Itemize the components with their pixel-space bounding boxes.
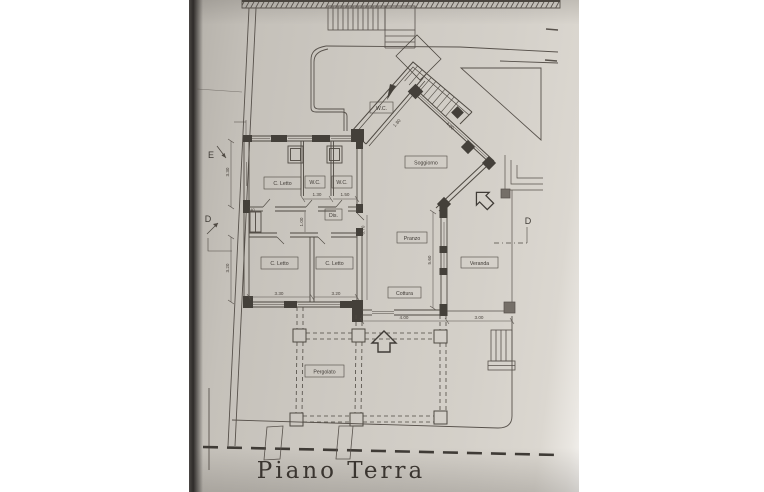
veranda-stair xyxy=(488,330,515,370)
plan-drawing: E D D 1.30 1.50 3.30 3.20 4.00 3.00 xyxy=(0,0,764,492)
driveway-inner xyxy=(314,49,344,131)
pergola-columns xyxy=(290,329,447,426)
room-label-wc-1: W.C. xyxy=(309,180,320,186)
dim-corridor-small: .40 xyxy=(249,207,255,212)
section-marker-d-right: D xyxy=(525,216,532,226)
room-label-c-letto-top: C. Letto xyxy=(273,181,291,187)
room-label-wc-2: W.C. xyxy=(336,180,347,186)
room-label-soggiorno: Soggiorno xyxy=(414,161,438,167)
terrain-line xyxy=(197,89,242,92)
entrance-arrow-soggiorno xyxy=(470,186,497,213)
driveway-outer xyxy=(311,46,347,131)
entrance-arrow-pergola xyxy=(372,331,396,352)
dimension-texts: 1.30 1.50 3.30 3.20 4.00 3.00 .40 5.60 6… xyxy=(225,118,484,320)
site-boundary xyxy=(197,0,560,470)
dim-center-height: 6.70 xyxy=(361,225,366,234)
room-label-pergolato: Pergolato xyxy=(313,370,335,376)
dim-bed-mid: 3.20 xyxy=(332,291,341,296)
dim-kitchen: 4.00 xyxy=(400,315,409,320)
room-label-veranda: Veranda xyxy=(470,261,489,267)
road-line-2 xyxy=(500,61,558,63)
dim-side-lower: 3.20 xyxy=(225,263,230,272)
dim-veranda: 3.00 xyxy=(475,315,484,320)
kitchen-walls xyxy=(362,207,448,316)
room-label-c-letto-left: C. Letto xyxy=(270,261,288,267)
dimension-lines xyxy=(228,139,514,324)
door-swing xyxy=(387,84,396,100)
room-label-c-letto-mid: C. Letto xyxy=(325,261,343,267)
top-staircase xyxy=(328,6,415,48)
dim-wc2: 1.50 xyxy=(341,192,350,197)
section-marker-d-left: D xyxy=(205,214,212,224)
dim-wc1: 1.30 xyxy=(313,192,322,197)
wall-piers xyxy=(351,84,496,211)
veranda-column-top xyxy=(501,189,510,198)
dim-entry-diagonal: 1.80 xyxy=(392,118,402,128)
dim-bed-left: 3.30 xyxy=(275,291,284,296)
ramp-triangle xyxy=(461,68,541,140)
dim-corridor: 1.00 xyxy=(299,217,304,226)
veranda-area xyxy=(232,189,515,428)
veranda-column xyxy=(504,302,515,313)
pergola-beams xyxy=(296,307,446,422)
entrance-block xyxy=(351,35,496,211)
dim-right-wall: 5.60 xyxy=(427,255,432,264)
pergola xyxy=(290,307,447,426)
property-dashed-line xyxy=(203,447,560,455)
section-marker-e: E xyxy=(208,150,214,160)
room-label-cottura: Cottura xyxy=(396,291,413,297)
bottom-markers xyxy=(264,426,353,460)
floor-plan-photo: E D D 1.30 1.50 3.30 3.20 4.00 3.00 xyxy=(0,0,764,492)
room-label-wc-entrance: W.C. xyxy=(376,106,387,112)
room-label-pranzo: Pranzo xyxy=(404,236,421,242)
dim-side-upper: 3.30 xyxy=(225,167,230,176)
road-line xyxy=(326,46,558,52)
page-title: Piano Terra xyxy=(257,458,425,484)
room-label-dis: Dis. xyxy=(329,213,338,219)
